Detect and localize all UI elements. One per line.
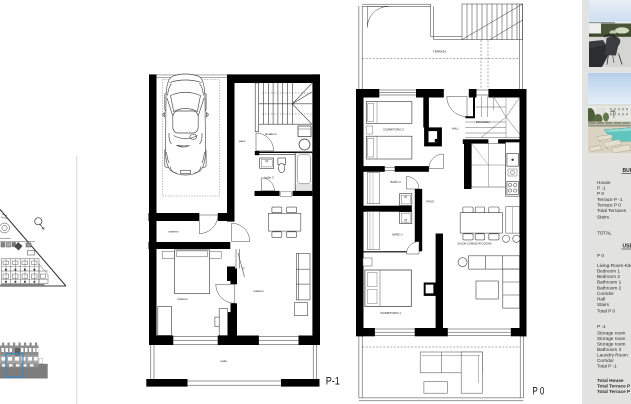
svg-text:House: House (597, 180, 611, 185)
svg-text:Total House: Total House (597, 378, 624, 383)
svg-text:Corridor: Corridor (597, 291, 614, 296)
svg-text:P 0: P 0 (532, 385, 544, 397)
svg-text:Total Terrace P: Total Terrace P (597, 384, 630, 389)
svg-text:P 0: P 0 (597, 191, 604, 196)
svg-text:Stairs: Stairs (597, 302, 610, 307)
svg-text:Bathroom 1: Bathroom 1 (597, 280, 622, 285)
svg-text:Total Terrace P: Total Terrace P (597, 389, 630, 394)
svg-text:Total P -1: Total P -1 (597, 364, 617, 369)
svg-text:Hall: Hall (597, 297, 605, 302)
svg-text:Corridor: Corridor (597, 358, 614, 363)
svg-text:Storage room: Storage room (597, 331, 625, 336)
svg-text:Total Terraces: Total Terraces (597, 208, 627, 213)
svg-text:Bedroom 1: Bedroom 1 (597, 269, 620, 274)
svg-text:patio: patio (221, 359, 228, 363)
svg-text:Bathroom 2: Bathroom 2 (597, 285, 622, 290)
svg-text:PASO: PASO (427, 199, 435, 203)
svg-text:P -1: P -1 (597, 186, 606, 191)
svg-text:Laundry Room: Laundry Room (597, 353, 628, 358)
svg-text:P -1: P -1 (597, 324, 606, 329)
svg-text:BAÑO 1: BAÑO 1 (393, 232, 404, 237)
svg-text:P 0: P 0 (597, 253, 604, 258)
svg-text:ESCALERA: ESCALERA (476, 120, 490, 124)
svg-text:Bathroom 3: Bathroom 3 (597, 347, 622, 352)
svg-text:USEFUL: USEFUL (623, 243, 631, 249)
svg-text:DORMITORIO 1: DORMITORIO 1 (381, 311, 402, 315)
svg-text:BUILT: BUILT (623, 168, 631, 174)
svg-text:trastero: trastero (169, 230, 180, 234)
svg-text:Terrace P -1: Terrace P -1 (597, 197, 623, 202)
svg-text:Storage room: Storage room (597, 342, 625, 347)
svg-text:Bedroom 2: Bedroom 2 (597, 274, 620, 279)
svg-text:paso: paso (239, 139, 246, 143)
svg-text:Living-Room-Kitchen: Living-Room-Kitchen (597, 263, 631, 268)
svg-text:TERRAZA: TERRAZA (433, 50, 446, 54)
svg-text:trastero: trastero (254, 289, 265, 293)
svg-text:SALON-COMEDOR-COCINA: SALON-COMEDOR-COCINA (458, 242, 492, 246)
svg-text:Total P 0: Total P 0 (597, 309, 616, 314)
svg-text:Stairs: Stairs (597, 214, 610, 219)
svg-text:trastero: trastero (178, 297, 189, 301)
svg-text:Terrace P 0: Terrace P 0 (597, 202, 621, 207)
svg-text:lavadero: lavadero (265, 132, 277, 136)
svg-text:HALL: HALL (452, 127, 459, 131)
svg-text:N: N (42, 226, 45, 231)
svg-text:Storage room: Storage room (597, 336, 625, 341)
svg-text:BAÑO 2: BAÑO 2 (391, 179, 402, 184)
svg-text:DORMITORIO 2: DORMITORIO 2 (384, 128, 405, 132)
svg-text:TOTAL: TOTAL (597, 231, 612, 236)
svg-text:P-1: P-1 (326, 376, 340, 388)
